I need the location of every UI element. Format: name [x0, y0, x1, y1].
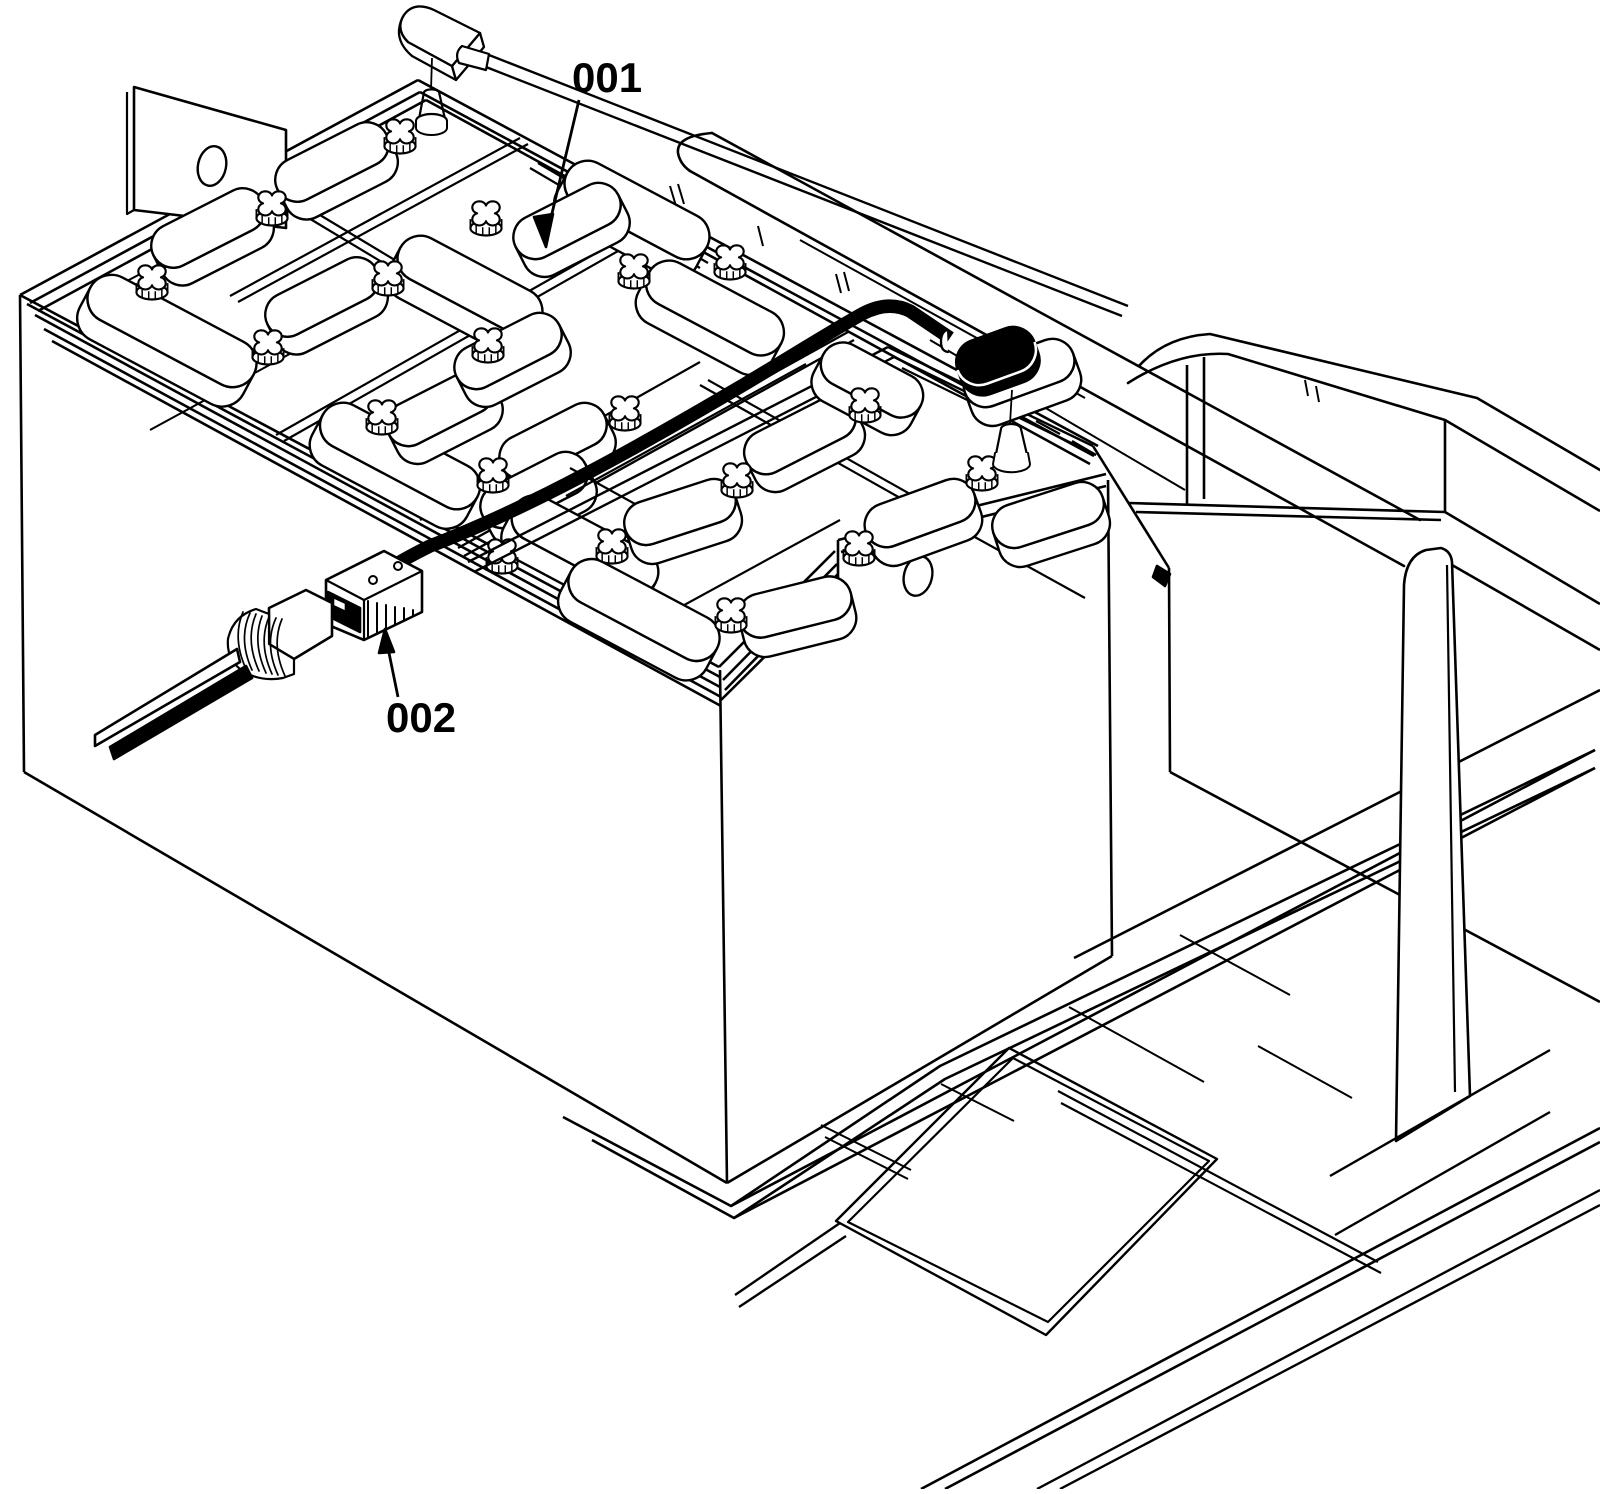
svg-text:001: 001 [572, 54, 642, 101]
svg-text:002: 002 [386, 694, 456, 741]
